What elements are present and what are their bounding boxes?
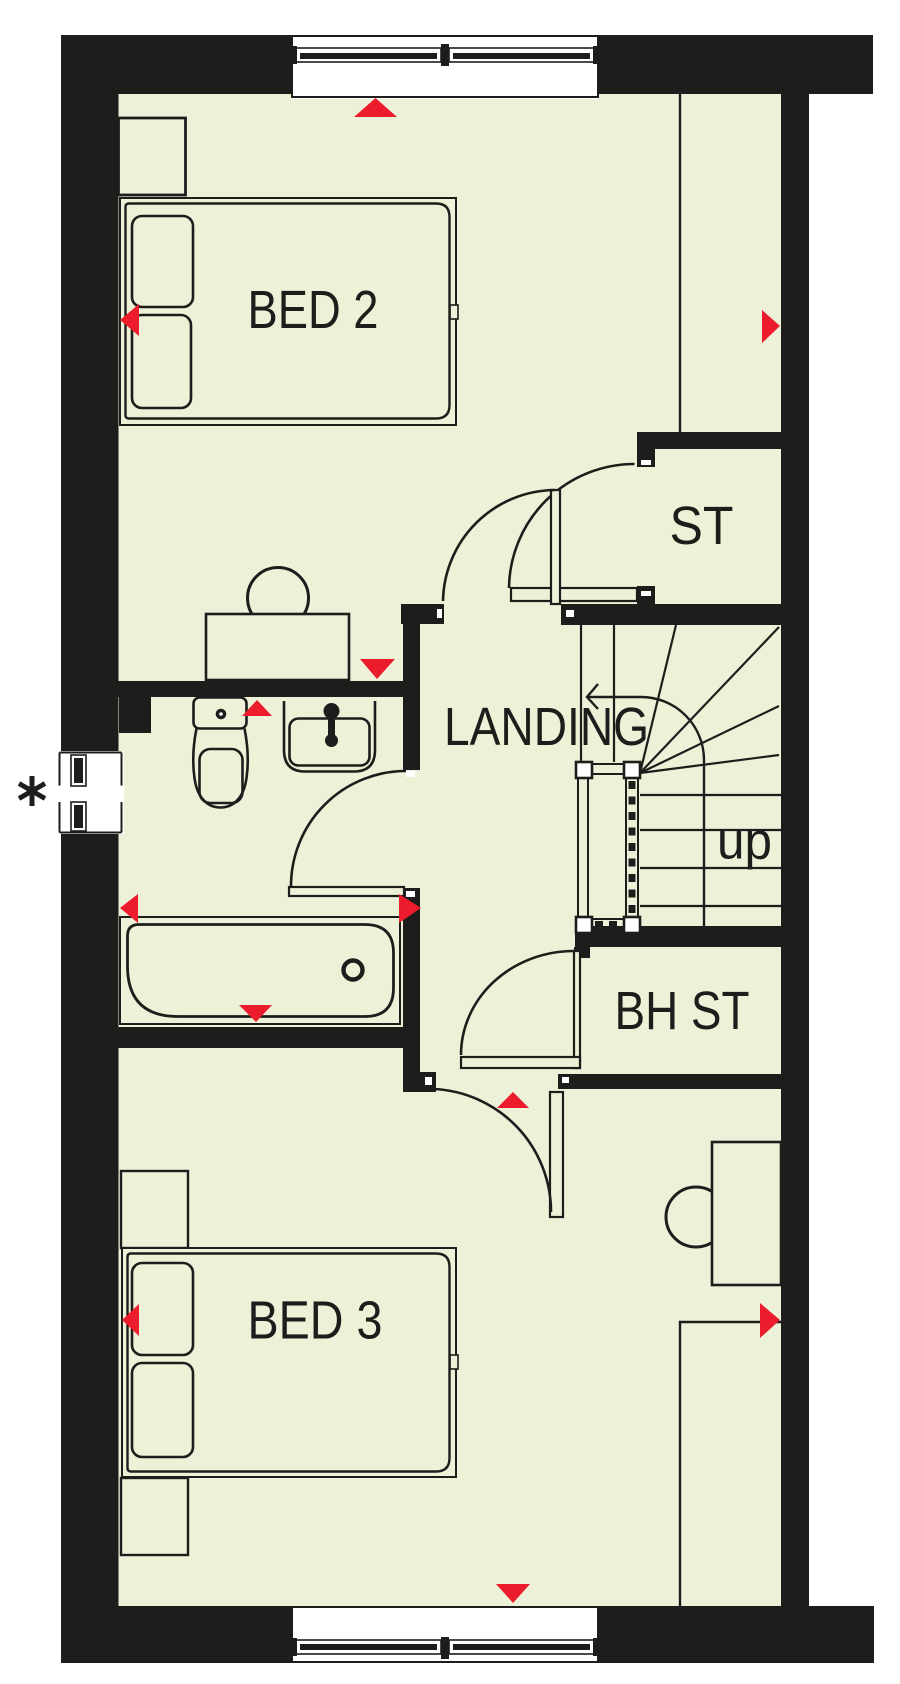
svg-text:LANDING: LANDING — [444, 697, 649, 757]
svg-text:BED 3: BED 3 — [248, 1291, 383, 1351]
svg-text:ST: ST — [670, 496, 734, 556]
svg-text:BED 2: BED 2 — [248, 280, 379, 340]
svg-text:up: up — [717, 813, 772, 871]
svg-text:BH ST: BH ST — [615, 981, 750, 1041]
